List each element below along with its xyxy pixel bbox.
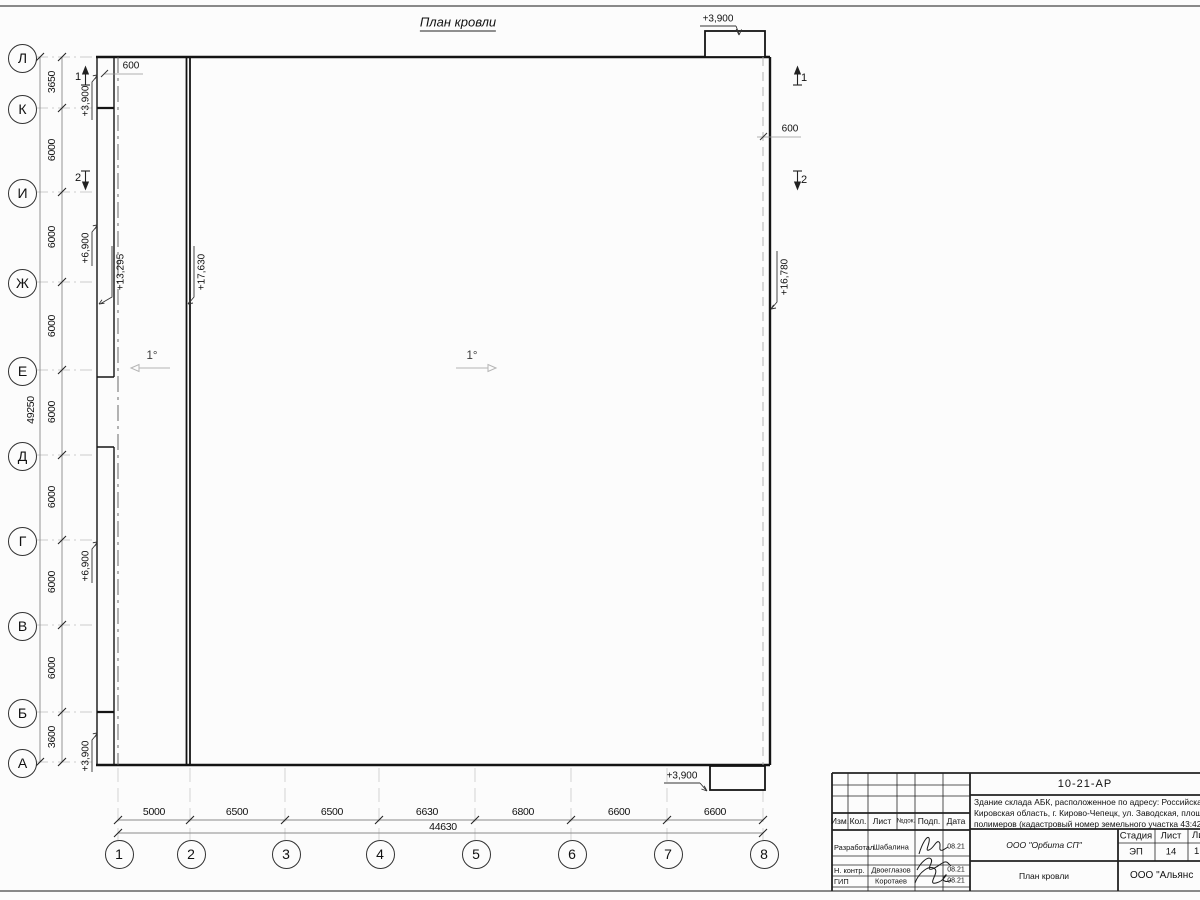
tb-stage-label: Стадия	[1120, 831, 1152, 842]
axis-bubble-A: А	[8, 749, 37, 778]
slope-label-right: 1°	[467, 350, 478, 362]
axis-bubble-G: Г	[8, 527, 37, 556]
tb-col-list: Лист	[873, 816, 891, 826]
tb-col-kol: Кол.	[850, 816, 867, 826]
section-mark-1-right: 1	[801, 72, 807, 84]
tb-role-3: ГИП	[834, 877, 849, 886]
dim-col-7: 6600	[704, 806, 726, 818]
section-mark-2-left: 2	[75, 172, 81, 184]
section-mark-2-right: 2	[801, 174, 807, 186]
drawing-title: План кровли	[420, 15, 496, 32]
drawing-sheet: Л К И Ж Е Д Г В Б А 1 2 3 4 5 6 7 8 3650…	[0, 0, 1200, 900]
dim-row-8: 6000	[46, 657, 58, 679]
slope-label-left: 1°	[147, 350, 158, 362]
tb-col-podp: Подп.	[918, 816, 941, 826]
axis-bubble-8: 8	[750, 840, 779, 869]
tb-doc-number: 10-21-АР	[1058, 778, 1112, 790]
section-mark-1-left: 1	[75, 71, 81, 83]
elevation-a: +3,900	[81, 741, 92, 772]
tb-date-2: 08.21	[947, 867, 965, 874]
axis-bubble-K: К	[8, 95, 37, 124]
axis-bubble-E: Е	[8, 357, 37, 386]
axis-extension-lines	[36, 57, 763, 840]
axis-bubble-B: Б	[8, 699, 37, 728]
elevation-bottom-box: +3,900	[667, 771, 698, 782]
dim-row-6: 6000	[46, 486, 58, 508]
dim-row-1: 3650	[46, 71, 58, 93]
dim-col-1: 5000	[143, 806, 165, 818]
internal-axis-lines	[118, 57, 763, 765]
axis-bubble-D: Д	[8, 442, 37, 471]
offset-600-left: 600	[123, 61, 140, 72]
elevation-top-box: +3,900	[703, 14, 734, 25]
axis-bubble-2: 2	[177, 840, 206, 869]
axis-bubble-7: 7	[654, 840, 683, 869]
dim-col-total: 44630	[429, 821, 457, 833]
offset-leaders	[101, 70, 801, 140]
roof-outline	[96, 31, 770, 790]
tb-col-izm: Изм.	[831, 816, 849, 826]
axis-bubble-6: 6	[558, 840, 587, 869]
dim-row-2: 6000	[46, 139, 58, 161]
tb-stage-value: ЭП	[1129, 847, 1143, 858]
tb-name-2: Двоеглазов	[871, 866, 910, 875]
tb-sheets-value: 1	[1194, 846, 1199, 857]
tb-sheet-value: 14	[1166, 847, 1177, 858]
tb-date-3: 08.21	[947, 878, 965, 885]
dim-row-5: 6000	[46, 401, 58, 423]
dim-row-4: 6000	[46, 315, 58, 337]
roof-hatch-bottom	[710, 766, 765, 790]
plan-linework	[0, 0, 1200, 900]
tb-name-3: Коротаев	[875, 877, 907, 886]
dim-col-2: 6500	[226, 806, 248, 818]
dim-row-total: 49250	[25, 396, 37, 424]
tb-sheets-label: Ли	[1192, 830, 1200, 841]
elevation-leaders	[92, 26, 777, 791]
offset-600-right: 600	[782, 124, 799, 135]
tb-sheet-label: Лист	[1161, 831, 1182, 842]
dim-row-7: 6000	[46, 571, 58, 593]
tb-org: ООО "Альянс	[1130, 870, 1193, 881]
dim-row-9: 3600	[46, 726, 58, 748]
elevation-zh: +6,900	[81, 233, 92, 264]
tb-description-line3: полимеров (кадастровый номер земельного …	[974, 819, 1200, 830]
axis-bubble-4: 4	[366, 840, 395, 869]
tb-company: ООО "Орбита СП"	[1006, 840, 1081, 850]
dim-col-3: 6500	[321, 806, 343, 818]
tb-role-2: Н. контр.	[834, 866, 865, 875]
dim-col-5: 6800	[512, 806, 534, 818]
dim-row-3: 6000	[46, 226, 58, 248]
dim-col-4: 6630	[416, 806, 438, 818]
axis-bubble-V: В	[8, 612, 37, 641]
elevation-ridge: +17,630	[197, 254, 208, 290]
tb-name-1: Шабалина	[873, 843, 909, 852]
elevation-k: +3,900	[81, 86, 92, 117]
tb-description: Здание склада АБК, расположенное по адре…	[974, 797, 1200, 830]
tb-description-line1: Здание склада АБК, расположенное по адре…	[974, 797, 1200, 808]
dim-col-6: 6600	[608, 806, 630, 818]
tb-role-1: Разработал	[834, 843, 874, 852]
tb-drawing-name: План кровли	[1019, 871, 1069, 881]
sheet-frame	[0, 6, 1200, 891]
axis-bubble-1: 1	[105, 840, 134, 869]
tb-date-1: 08.21	[947, 844, 965, 851]
axis-bubble-3: 3	[272, 840, 301, 869]
elevation-right-edge: +16,780	[780, 259, 791, 295]
axis-bubble-5: 5	[462, 840, 491, 869]
axis-bubble-L: Л	[8, 44, 37, 73]
tb-col-ndok: №док.	[897, 818, 915, 825]
tb-col-data: Дата	[947, 816, 966, 826]
tb-description-line2: Кировская область, г. Кирово-Чепецк, ул.…	[974, 808, 1200, 819]
axis-bubble-Zh: Ж	[8, 269, 37, 298]
axis-bubble-I: И	[8, 179, 37, 208]
elevation-g: +6,900	[81, 551, 92, 582]
elevation-low-roof: +13,295	[116, 254, 127, 290]
roof-hatch-top	[705, 31, 765, 57]
